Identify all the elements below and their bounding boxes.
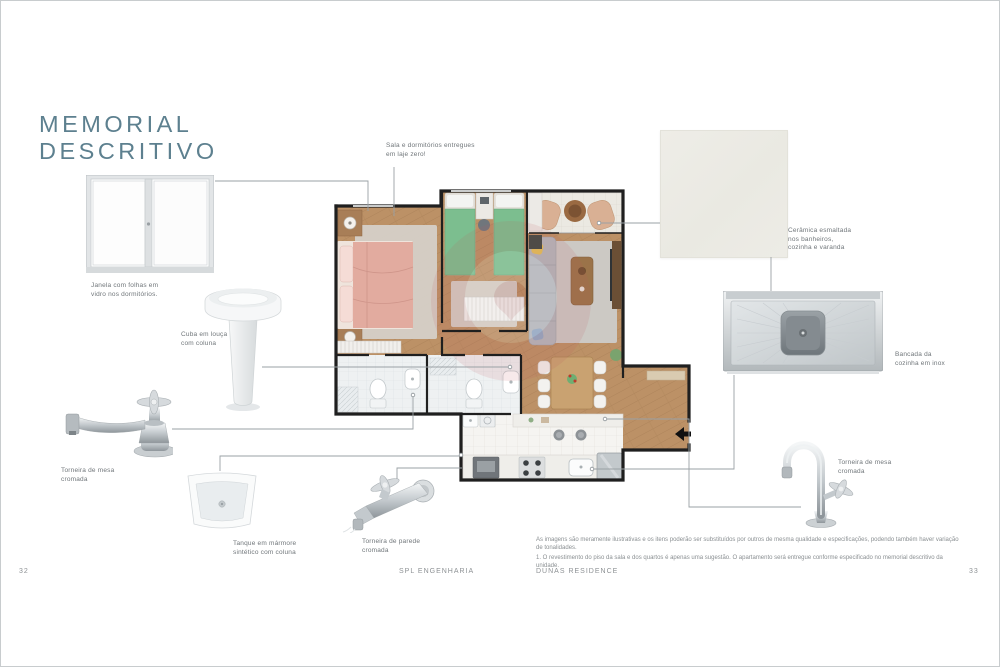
pedestal-sink-label: Cuba em louça com coluna [181, 331, 239, 348]
table-faucet-right-label: Torneira de mesa cromada [838, 459, 896, 476]
cross-handle-icon [825, 474, 857, 503]
window-handle [147, 222, 150, 225]
footer-project: DUNAS RESIDENCE [536, 568, 618, 575]
watermark [431, 221, 591, 381]
plan-master-bedroom [337, 210, 437, 353]
tank-illustration [178, 468, 266, 540]
table-faucet-left-illustration [53, 387, 173, 467]
disclaimer-line1: As imagens são meramente ilustrativas e … [536, 537, 964, 552]
table-faucet-left-label: Torneira de mesa cromada [61, 467, 121, 484]
brochure-page: MEMORIAL DESCRITIVO Janela com folhas em… [0, 0, 1000, 667]
page-title: MEMORIAL DESCRITIVO [39, 111, 218, 165]
wall-faucet-label: Torneira de parede cromada [362, 538, 424, 555]
page-number-left: 32 [19, 568, 29, 575]
window-illustration [86, 175, 214, 273]
plan-note-label: Sala e dormitórios entregues em laje zer… [386, 142, 476, 159]
page-number-right: 33 [969, 568, 979, 575]
page-title-line2: DESCRITIVO [39, 138, 218, 165]
floor-plan [331, 183, 693, 485]
page-title-line1: MEMORIAL [39, 111, 218, 138]
countertop-illustration [723, 291, 883, 375]
countertop-label: Bancada da cozinha em inox [895, 351, 953, 368]
tank-label: Tanque em mármore sintético com coluna [233, 540, 297, 557]
window-label: Janela com folhas em vidro nos dormitóri… [91, 282, 163, 299]
footer-company: SPL ENGENHARIA [399, 568, 474, 575]
ceramic-label: Cerâmica esmaltada nos banheiros, cozinh… [788, 227, 852, 253]
pedestal-sink-illustration [197, 283, 289, 413]
